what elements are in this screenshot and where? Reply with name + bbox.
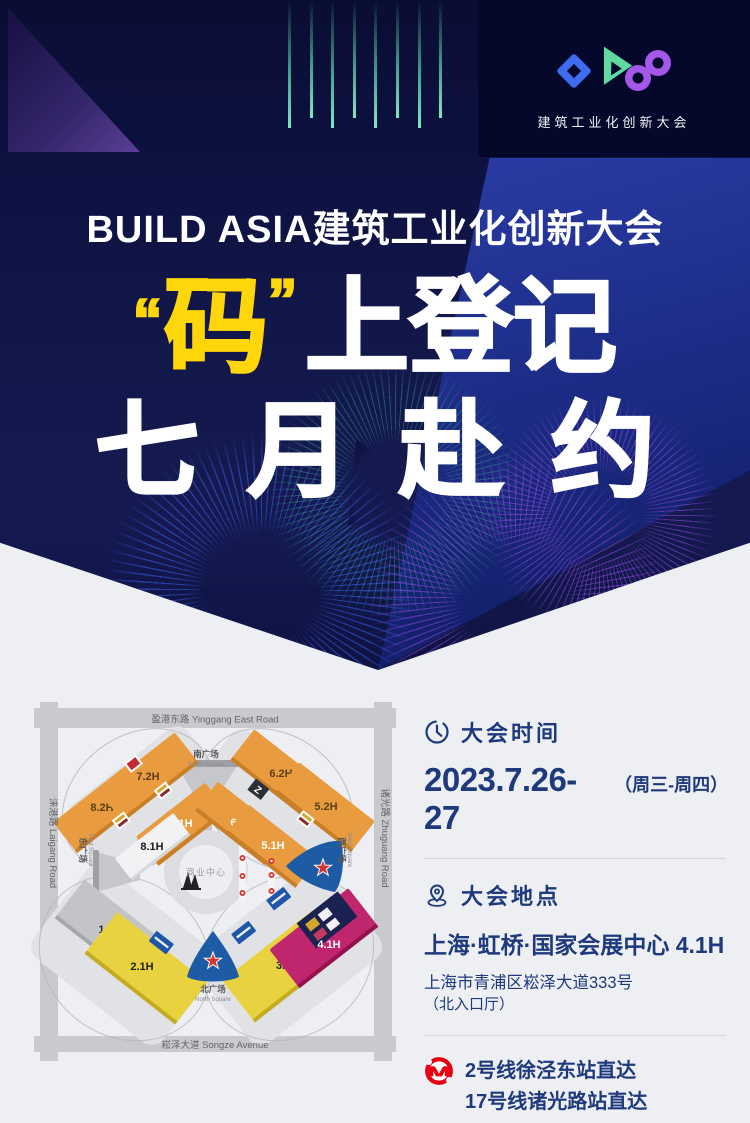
venue-address: 上海市青浦区崧泽大道333号 （北入口厅） <box>424 969 726 1014</box>
close-quote: ” <box>268 272 297 330</box>
south-square-label: 南广场 <box>193 749 219 759</box>
venue-map: 8.2H 7.2H 7.1H <box>30 700 400 1092</box>
svg-text:West Square: West Square <box>346 833 352 868</box>
shanghai-metro-icon <box>424 1056 454 1086</box>
north-square-label: 北广场 <box>200 984 226 994</box>
slogan-line2: 七月赴约 <box>0 400 750 504</box>
metro-line-2: 2号线徐泾东站直达 <box>465 1056 647 1087</box>
svg-text:7.2H: 7.2H <box>136 771 159 783</box>
event-date: 2023.7.26-27 （周三-周四） <box>424 761 726 837</box>
logo-infinity-icon <box>625 50 671 91</box>
svg-text:2.1H: 2.1H <box>130 961 153 973</box>
slogan-line1-rest: 上登记 <box>305 276 617 380</box>
brand-name: 建筑工业化创新大会 <box>478 112 750 131</box>
svg-text:4.1H: 4.1H <box>317 939 340 951</box>
event-poster: 建筑工业化创新大会 BUILD ASIA建筑工业化创新大会 “码”上登记 七月赴… <box>0 0 750 1123</box>
place-section-heading: 大会地点 <box>424 879 726 911</box>
brand-logo-icon <box>554 38 674 100</box>
road-left-label: 涞港路 Laigang Road <box>47 798 59 888</box>
divider <box>424 858 726 859</box>
hero-banner: 建筑工业化创新大会 BUILD ASIA建筑工业化创新大会 “码”上登记 七月赴… <box>0 0 750 670</box>
teal-lines-decoration <box>288 0 442 128</box>
date-weekdays: （周三-周四） <box>614 771 726 797</box>
svg-text:5.1H: 5.1H <box>261 840 284 852</box>
entrance-note: （北入口厅） <box>424 996 514 1013</box>
venue-name: 上海·虹桥·国家会展中心 4.1H <box>424 926 726 960</box>
time-section-heading: 大会时间 <box>424 716 726 748</box>
road-right-label: 诸光路 Zhuguang Road <box>379 788 391 887</box>
purple-triangle-decoration <box>8 8 140 152</box>
road-bottom-label: 崧泽大道 Songze Avenue <box>161 1039 268 1051</box>
divider <box>424 1035 726 1036</box>
metro-lines: 2号线徐泾东站直达 17号线诸光路站直达 <box>465 1056 647 1118</box>
open-quote: “ <box>133 292 162 350</box>
clock-icon <box>424 719 450 745</box>
date-value: 2023.7.26-27 <box>424 761 609 837</box>
center-label: 商业中心 <box>186 867 226 878</box>
svg-text:East Square: East Square <box>87 833 93 867</box>
time-heading: 大会时间 <box>461 716 561 748</box>
logo-diamond-icon <box>556 53 592 89</box>
brand-logo-box: 建筑工业化创新大会 <box>478 0 750 157</box>
svg-text:North Square: North Square <box>195 997 231 1003</box>
svg-text:8.1H: 8.1H <box>140 841 163 853</box>
event-info-panel: 大会时间 2023.7.26-27 （周三-周四） 大会地点 上海·虹桥·国家会… <box>424 716 726 1118</box>
slogan-highlight: 码 <box>164 276 268 380</box>
svg-text:South Square: South Square <box>188 762 225 768</box>
metro-access: 2号线徐泾东站直达 17号线诸光路站直达 <box>424 1056 726 1118</box>
location-pin-icon <box>424 882 450 908</box>
east-square-label: 东广场 <box>78 837 88 863</box>
place-heading: 大会地点 <box>461 879 561 911</box>
svg-text:5.2H: 5.2H <box>314 801 337 813</box>
west-square-label: 西广场 <box>337 837 347 863</box>
metro-line-17: 17号线诸光路站直达 <box>465 1087 647 1118</box>
slogan-line1: “码”上登记 <box>0 276 750 380</box>
poster-title: BUILD ASIA建筑工业化创新大会 <box>0 198 750 253</box>
road-top-label: 盈港东路 Yinggang East Road <box>151 714 278 726</box>
